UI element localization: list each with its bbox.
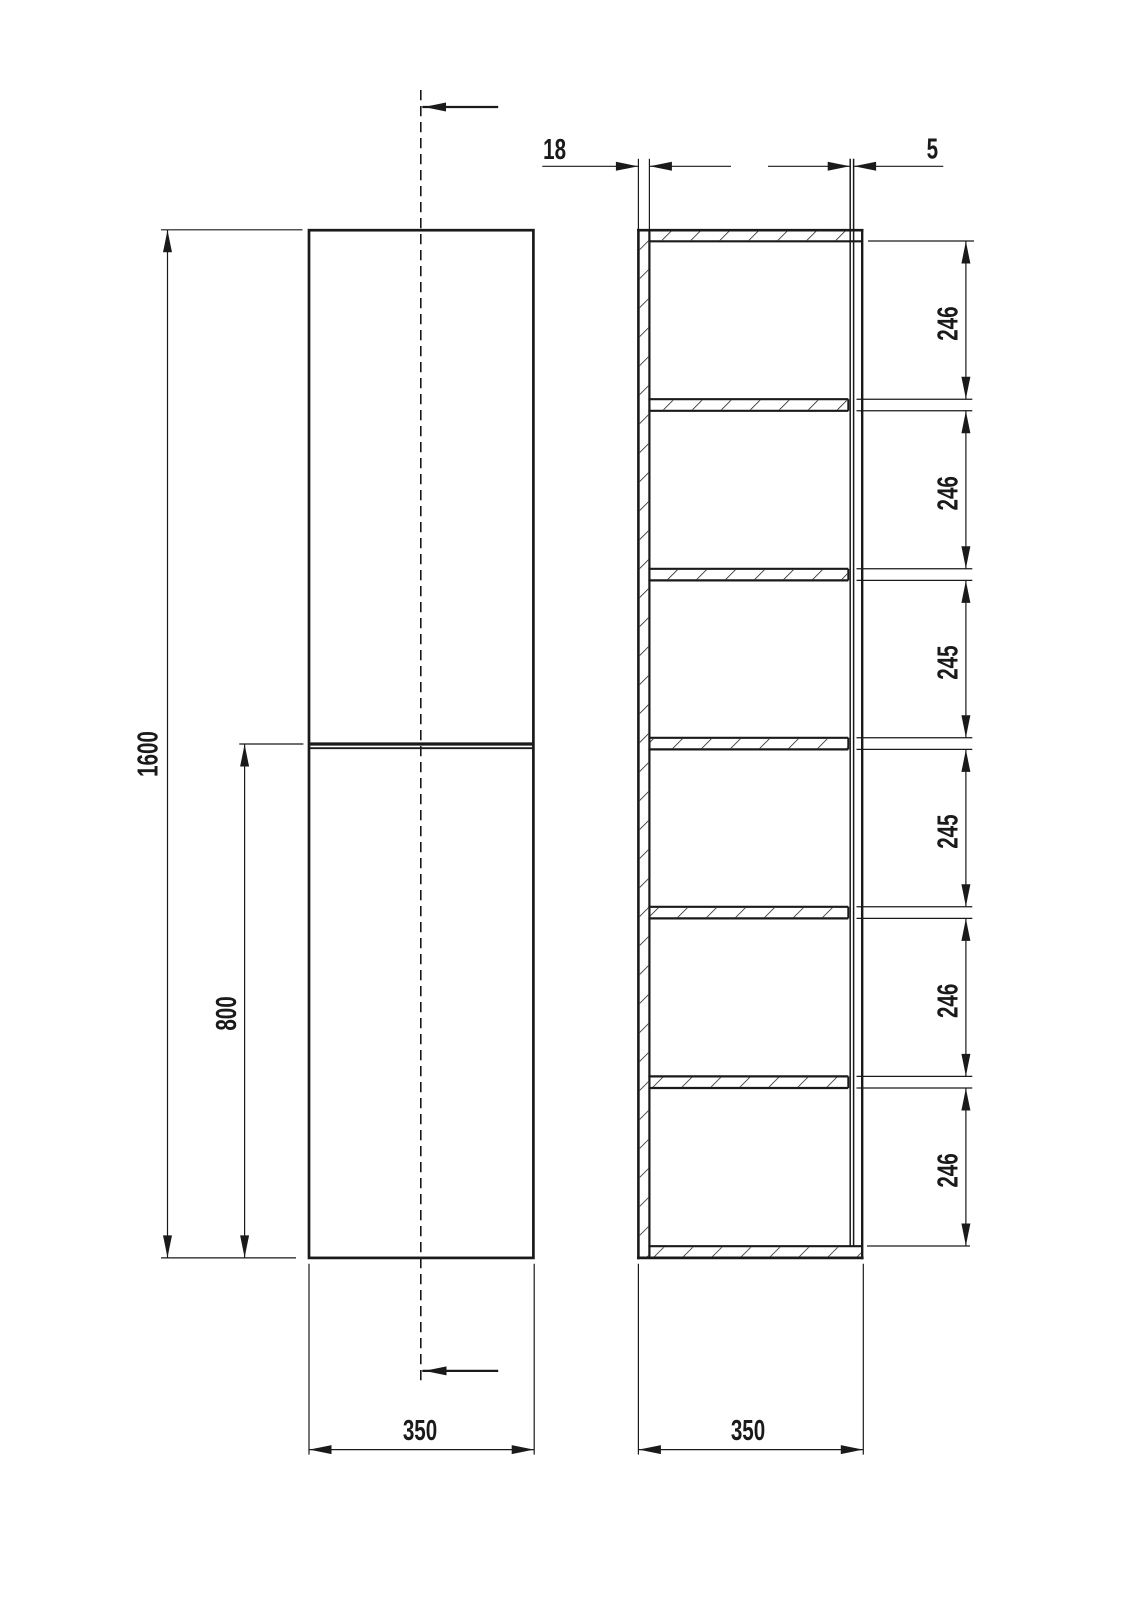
svg-text:350: 350 xyxy=(403,1415,437,1447)
svg-text:246: 246 xyxy=(932,306,964,340)
svg-text:246: 246 xyxy=(932,1153,964,1187)
svg-text:245: 245 xyxy=(932,645,964,679)
svg-text:5: 5 xyxy=(927,133,938,165)
svg-text:800: 800 xyxy=(210,996,242,1030)
svg-text:18: 18 xyxy=(543,134,566,166)
svg-text:246: 246 xyxy=(932,476,964,510)
svg-text:245: 245 xyxy=(932,814,964,848)
svg-text:246: 246 xyxy=(932,984,964,1018)
svg-text:1600: 1600 xyxy=(132,731,164,777)
svg-text:350: 350 xyxy=(731,1415,765,1447)
